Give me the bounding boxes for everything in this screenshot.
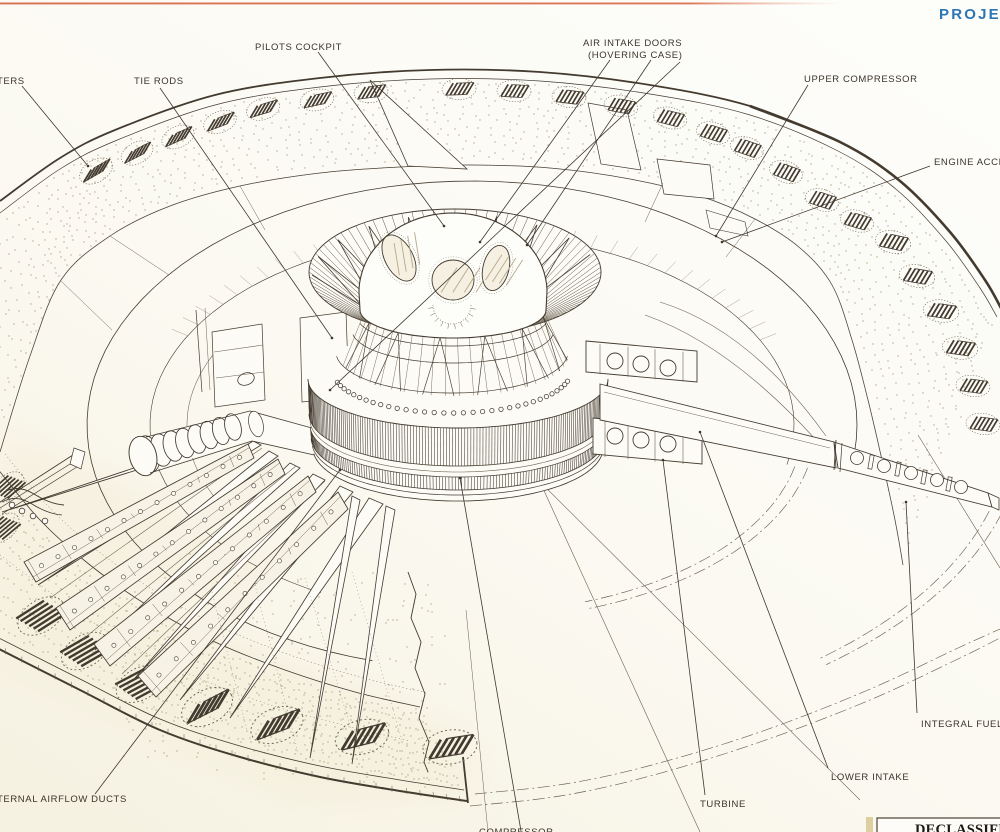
svg-text:TIE RODS: TIE RODS [134,76,184,87]
svg-text:AIR INTAKE DOORS: AIR INTAKE DOORS [583,38,682,49]
svg-text:PROJECT: PROJECT [939,6,1000,23]
svg-text:UPPER COMPRESSOR: UPPER COMPRESSOR [804,74,918,85]
svg-text:(HOVERING CASE): (HOVERING CASE) [588,50,683,61]
svg-text:LOWER INTAKE: LOWER INTAKE [831,772,909,783]
svg-text:ENGINE ACCESSORIES: ENGINE ACCESSORIES [934,157,1000,168]
svg-text:PILOTS COCKPIT: PILOTS COCKPIT [255,42,342,53]
svg-text:TURBINE: TURBINE [700,799,746,810]
svg-text:DECLASSIFIED: DECLASSIFIED [915,822,1000,832]
svg-text:COMPRESSOR: COMPRESSOR [479,827,554,832]
svg-text:TERNAL AIRFLOW DUCTS: TERNAL AIRFLOW DUCTS [0,794,127,805]
svg-text:TERS: TERS [0,76,25,87]
svg-text:INTEGRAL FUEL TANKS: INTEGRAL FUEL TANKS [921,719,1000,730]
